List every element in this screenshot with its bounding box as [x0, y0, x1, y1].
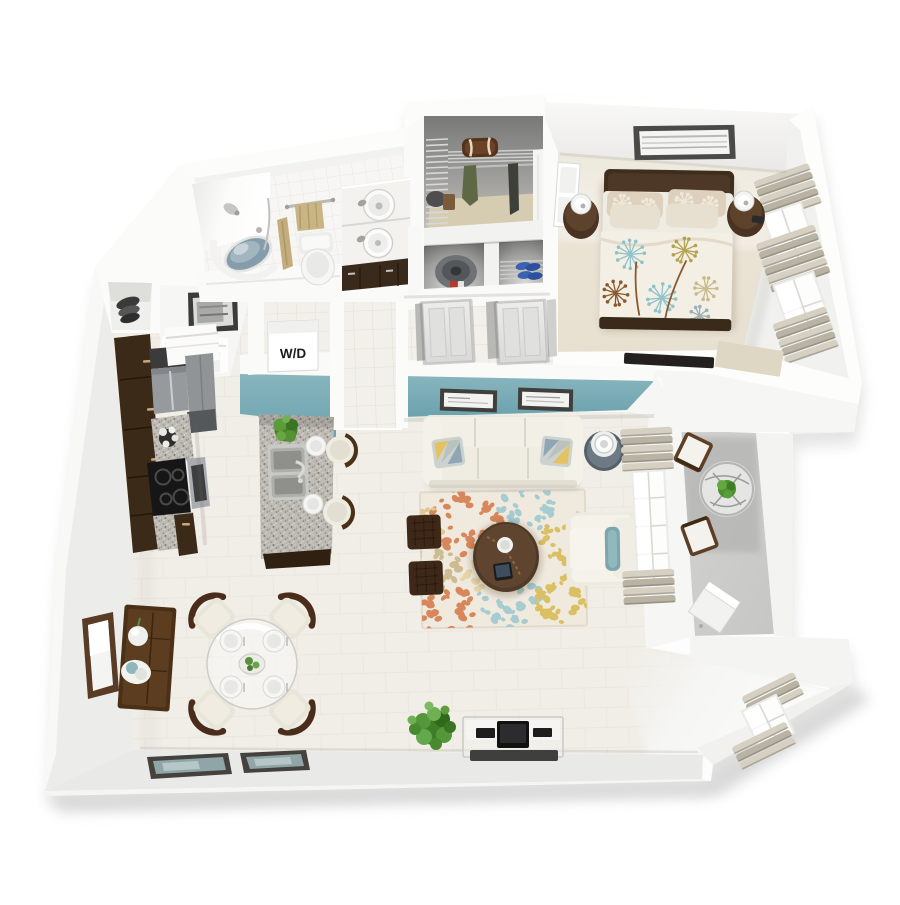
svg-text:W/D: W/D — [280, 346, 307, 361]
